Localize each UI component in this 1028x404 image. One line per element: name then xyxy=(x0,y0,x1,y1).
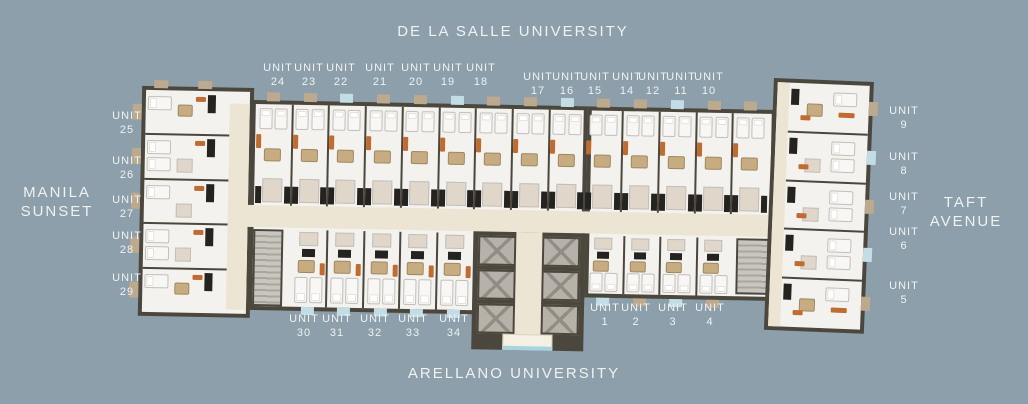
floor-plan-scene: DE LA SALLE UNIVERSITY ARELLANO UNIVERSI… xyxy=(0,0,1028,404)
unit-word: UNIT xyxy=(101,155,153,169)
unit-label-28: UNIT28 xyxy=(101,230,153,257)
unit-label-26: UNIT26 xyxy=(101,155,153,182)
unit-label-5: UNIT5 xyxy=(878,280,930,307)
unit-word: UNIT xyxy=(878,105,930,119)
unit-word: UNIT xyxy=(101,272,153,286)
unit-labels-layer: UNIT24UNIT23UNIT22UNIT21UNIT20UNIT19UNIT… xyxy=(0,0,1028,404)
unit-number: 26 xyxy=(101,169,153,183)
unit-number: 6 xyxy=(878,240,930,254)
unit-word: UNIT xyxy=(101,194,153,208)
unit-word: UNIT xyxy=(101,230,153,244)
unit-number: 34 xyxy=(428,327,480,341)
unit-number: 10 xyxy=(683,85,735,99)
unit-label-8: UNIT8 xyxy=(878,151,930,178)
unit-number: 25 xyxy=(101,124,153,138)
unit-word: UNIT xyxy=(428,313,480,327)
unit-word: UNIT xyxy=(455,62,507,76)
unit-word: UNIT xyxy=(878,191,930,205)
unit-number: 29 xyxy=(101,286,153,300)
unit-number: 4 xyxy=(684,316,736,330)
unit-label-27: UNIT27 xyxy=(101,194,153,221)
unit-label-10: UNIT10 xyxy=(683,71,735,98)
unit-label-7: UNIT7 xyxy=(878,191,930,218)
unit-word: UNIT xyxy=(878,151,930,165)
unit-word: UNIT xyxy=(878,280,930,294)
unit-label-4: UNIT4 xyxy=(684,302,736,329)
unit-label-18: UNIT18 xyxy=(455,62,507,89)
unit-word: UNIT xyxy=(683,71,735,85)
unit-number: 27 xyxy=(101,208,153,222)
unit-number: 9 xyxy=(878,119,930,133)
unit-label-34: UNIT34 xyxy=(428,313,480,340)
unit-number: 18 xyxy=(455,76,507,90)
unit-word: UNIT xyxy=(684,302,736,316)
unit-number: 28 xyxy=(101,244,153,258)
unit-word: UNIT xyxy=(878,226,930,240)
unit-label-6: UNIT6 xyxy=(878,226,930,253)
unit-word: UNIT xyxy=(101,110,153,124)
unit-number: 8 xyxy=(878,165,930,179)
unit-label-9: UNIT9 xyxy=(878,105,930,132)
unit-number: 5 xyxy=(878,294,930,308)
unit-label-29: UNIT29 xyxy=(101,272,153,299)
unit-label-25: UNIT25 xyxy=(101,110,153,137)
unit-number: 7 xyxy=(878,205,930,219)
